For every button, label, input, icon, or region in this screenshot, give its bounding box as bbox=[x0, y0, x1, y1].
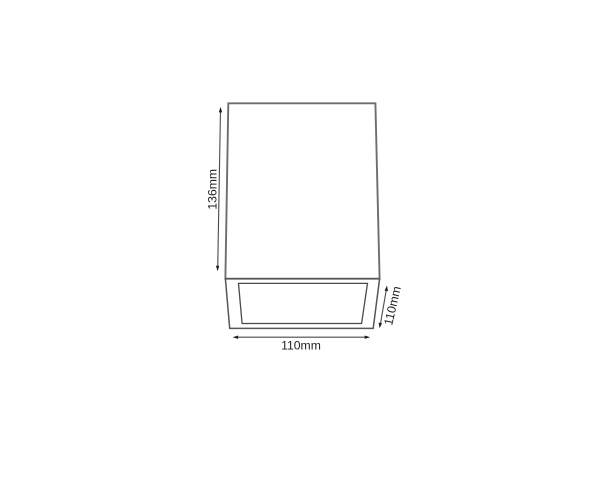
svg-text:136mm: 136mm bbox=[205, 169, 219, 210]
svg-text:110mm: 110mm bbox=[281, 339, 321, 353]
svg-text:110mm: 110mm bbox=[381, 285, 404, 327]
